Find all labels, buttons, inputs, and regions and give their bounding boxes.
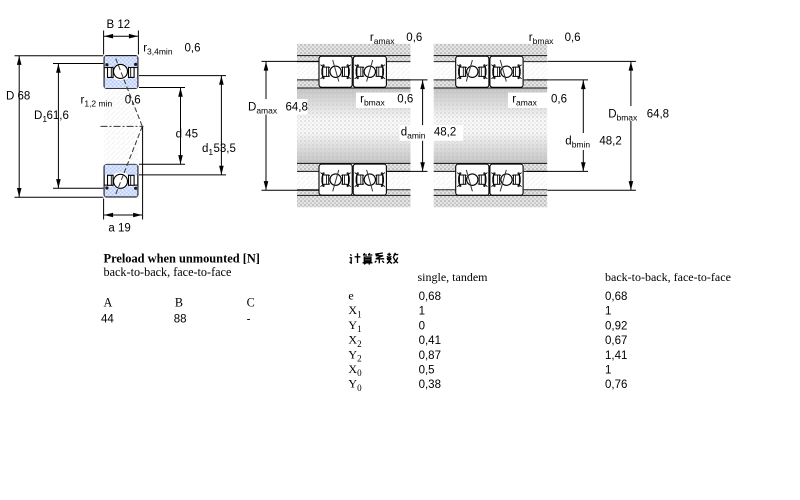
svg-text:Preload when unmounted [N]: Preload when unmounted [N] [104, 252, 260, 266]
svg-text:back-to-back, face-to-face: back-to-back, face-to-face [605, 270, 731, 284]
svg-text:-: - [247, 313, 251, 325]
svg-text:0,68: 0,68 [605, 291, 627, 303]
svg-text:back-to-back, face-to-face: back-to-back, face-to-face [104, 265, 232, 279]
svg-text:single, tandem: single, tandem [418, 270, 489, 284]
svg-text:Y0: Y0 [348, 377, 362, 393]
svg-text:A: A [104, 295, 113, 309]
svg-text:0,87: 0,87 [419, 350, 441, 362]
svg-text:0,68: 0,68 [419, 291, 441, 303]
svg-text:0,67: 0,67 [605, 335, 627, 347]
svg-text:1: 1 [419, 306, 425, 318]
svg-text:B 12: B 12 [107, 19, 131, 31]
svg-text:rbmax0,6: rbmax0,6 [529, 32, 581, 46]
svg-text:44: 44 [101, 313, 114, 325]
svg-text:d 45: d 45 [176, 128, 198, 140]
svg-text:C: C [247, 295, 255, 309]
svg-text:D161,6: D161,6 [34, 110, 69, 124]
svg-text:r3,4min0,6: r3,4min0,6 [143, 43, 200, 57]
svg-text:a 19: a 19 [108, 223, 130, 235]
svg-text:0,76: 0,76 [605, 379, 627, 391]
svg-text:0,38: 0,38 [419, 379, 441, 391]
svg-text:d153,5: d153,5 [202, 143, 236, 157]
svg-text:0: 0 [419, 320, 425, 332]
svg-text:1: 1 [605, 365, 611, 377]
svg-text:0,41: 0,41 [419, 335, 441, 347]
svg-text:1,41: 1,41 [605, 350, 627, 362]
svg-text:0,92: 0,92 [605, 320, 627, 332]
svg-text:1: 1 [605, 306, 611, 318]
svg-text:B: B [175, 295, 183, 309]
svg-text:0,5: 0,5 [419, 365, 435, 377]
svg-text:88: 88 [174, 313, 187, 325]
svg-text:D 68: D 68 [6, 91, 30, 103]
svg-text:e: e [348, 289, 353, 303]
